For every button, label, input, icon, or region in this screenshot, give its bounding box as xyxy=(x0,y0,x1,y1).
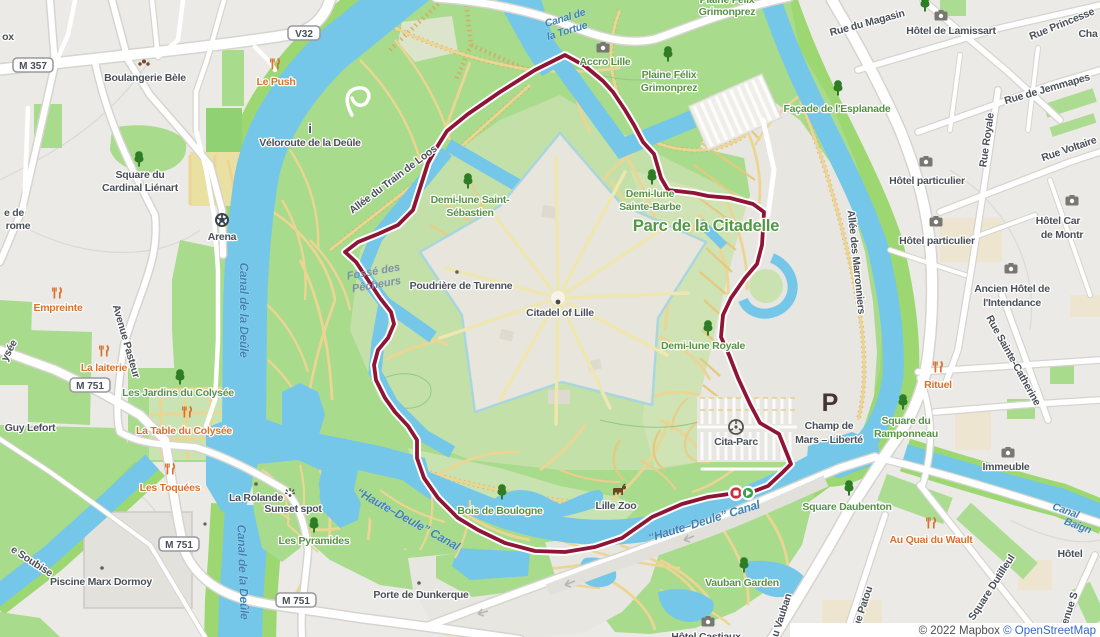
svg-text:Rituel: Rituel xyxy=(924,379,952,391)
svg-text:Square Daubenton: Square Daubenton xyxy=(802,501,891,513)
svg-text:Hôtel particulier: Hôtel particulier xyxy=(889,175,965,187)
svg-text:V32: V32 xyxy=(295,29,313,40)
svg-text:Véloroute de la Deûle: Véloroute de la Deûle xyxy=(259,137,361,149)
svg-text:Square du: Square du xyxy=(881,415,930,427)
svg-text:Demi-lune: Demi-lune xyxy=(626,188,675,200)
svg-text:La laiterie: La laiterie xyxy=(81,362,128,374)
svg-text:Canal de la Deûle: Canal de la Deûle xyxy=(237,262,251,358)
svg-text:Poudrière de Turenne: Poudrière de Turenne xyxy=(410,280,513,292)
svg-text:Les Jardins du Colysée: Les Jardins du Colysée xyxy=(122,387,234,399)
svg-text:Cha: Cha xyxy=(1078,28,1097,40)
svg-text:Les Pyramides: Les Pyramides xyxy=(279,535,350,547)
svg-text:Guy Lefort: Guy Lefort xyxy=(5,422,56,434)
svg-text:Les Toquées: Les Toquées xyxy=(140,482,201,494)
svg-text:Empreinte: Empreinte xyxy=(33,302,83,314)
svg-text:Hôtel Car: Hôtel Car xyxy=(1036,215,1081,227)
svg-text:Plaine Félix: Plaine Félix xyxy=(642,69,697,81)
svg-text:Demi-lune Saint-: Demi-lune Saint- xyxy=(431,194,511,206)
svg-text:Parc de la Citadelle: Parc de la Citadelle xyxy=(633,217,779,235)
svg-text:Accro Lille: Accro Lille xyxy=(580,56,631,68)
svg-text:Grimonprez: Grimonprez xyxy=(699,6,755,18)
svg-text:rome: rome xyxy=(6,220,31,232)
svg-text:Vauban Garden: Vauban Garden xyxy=(705,577,779,589)
svg-text:Sainte-Barbe: Sainte-Barbe xyxy=(619,201,681,213)
svg-text:Lille Zoo: Lille Zoo xyxy=(596,500,637,512)
svg-text:i: i xyxy=(308,121,312,136)
svg-text:La Table du Colysée: La Table du Colysée xyxy=(136,425,232,437)
svg-text:Ancien Hôtel de: Ancien Hôtel de xyxy=(974,283,1050,295)
svg-text:Piscine Marx Dormoy: Piscine Marx Dormoy xyxy=(50,576,152,588)
svg-text:Ramponneau: Ramponneau xyxy=(874,428,938,440)
svg-text:Porte de Dunkerque: Porte de Dunkerque xyxy=(373,589,469,601)
svg-text:e de: e de xyxy=(4,207,24,219)
svg-text:Le Push: Le Push xyxy=(256,76,295,88)
svg-text:Hôtel: Hôtel xyxy=(1058,548,1083,560)
svg-text:Façade de l'Esplanade: Façade de l'Esplanade xyxy=(784,103,891,115)
svg-text:Grimonprez: Grimonprez xyxy=(641,82,697,94)
svg-text:M 751: M 751 xyxy=(282,596,310,607)
svg-text:Hôtel particulier: Hôtel particulier xyxy=(899,235,975,247)
svg-text:Cita-Parc: Cita-Parc xyxy=(714,436,758,448)
svg-text:Hôtel Castiaux: Hôtel Castiaux xyxy=(671,631,741,637)
svg-text:© 2022 Mapbox © OpenStreetMap: © 2022 Mapbox © OpenStreetMap xyxy=(919,625,1096,637)
svg-text:Arena: Arena xyxy=(208,231,237,243)
svg-text:Cardinal Liénart: Cardinal Liénart xyxy=(102,182,179,194)
svg-text:ox: ox xyxy=(2,31,14,43)
svg-text:Sébastien: Sébastien xyxy=(446,207,493,219)
svg-text:de Montr: de Montr xyxy=(1041,229,1083,241)
svg-text:Citadel of Lille: Citadel of Lille xyxy=(526,307,594,319)
svg-text:Sunset spot: Sunset spot xyxy=(264,503,322,515)
svg-text:M 751: M 751 xyxy=(165,540,193,551)
svg-text:M 751: M 751 xyxy=(76,381,104,392)
svg-text:M 357: M 357 xyxy=(19,61,47,72)
svg-text:P: P xyxy=(822,389,839,417)
svg-text:Bois de Boulogne: Bois de Boulogne xyxy=(457,505,543,517)
svg-text:Mars – Liberté: Mars – Liberté xyxy=(795,434,863,446)
svg-text:Demi-lune Royale: Demi-lune Royale xyxy=(661,340,746,352)
svg-text:Hôtel de Lamissart: Hôtel de Lamissart xyxy=(906,25,996,37)
svg-text:Au Quai du Wault: Au Quai du Wault xyxy=(889,534,973,546)
svg-text:Immeuble: Immeuble xyxy=(982,461,1029,473)
svg-text:Square du: Square du xyxy=(115,169,164,181)
svg-text:Champ de: Champ de xyxy=(805,420,854,432)
svg-text:Boulangerie Bèle: Boulangerie Bèle xyxy=(104,72,186,84)
svg-text:l'Intendance: l'Intendance xyxy=(983,297,1041,309)
